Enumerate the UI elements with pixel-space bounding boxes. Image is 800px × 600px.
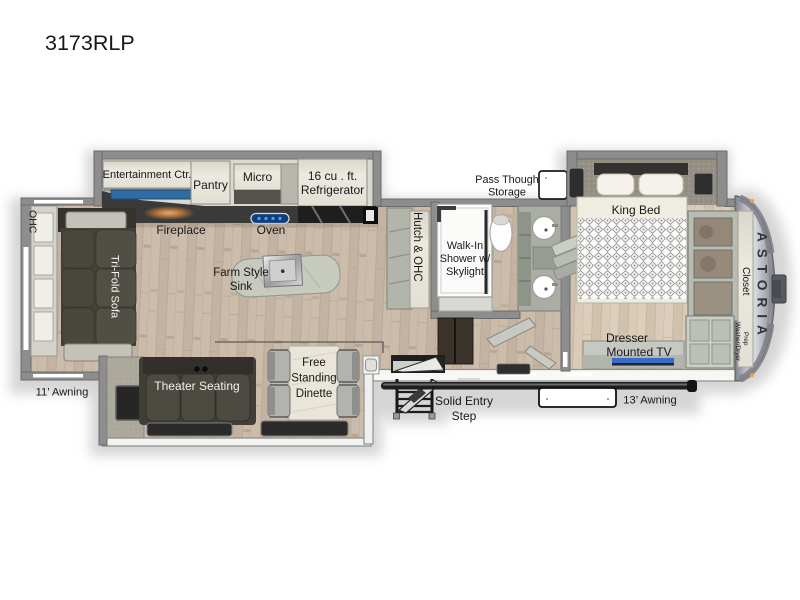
svg-text:Mounted TV: Mounted TV (606, 345, 671, 359)
svg-text:Oven: Oven (257, 223, 286, 237)
svg-text:Hutch & OHC: Hutch & OHC (411, 212, 423, 282)
svg-text:Pantry: Pantry (193, 178, 228, 192)
svg-text:Fireplace: Fireplace (156, 223, 206, 237)
svg-text:Dinette: Dinette (296, 388, 332, 400)
svg-text:Sink: Sink (230, 281, 253, 293)
svg-text:Solid Entry: Solid Entry (435, 394, 493, 408)
svg-text:Refrigerator: Refrigerator (301, 183, 364, 197)
svg-text:Micro: Micro (243, 170, 273, 184)
svg-text:11’ Awning: 11’ Awning (36, 387, 89, 399)
svg-text:Tri-Fold Sofa: Tri-Fold Sofa (109, 255, 121, 319)
svg-text:Dresser: Dresser (606, 331, 648, 345)
svg-text:16 cu . ft.: 16 cu . ft. (308, 169, 357, 183)
svg-text:Standing: Standing (291, 373, 336, 385)
svg-text:13’ Awning: 13’ Awning (623, 395, 677, 407)
svg-text:OHC: OHC (27, 210, 39, 234)
svg-text:Walk-In: Walk-In (447, 240, 483, 252)
svg-text:King Bed: King Bed (612, 203, 661, 217)
svg-text:3173RLP: 3173RLP (45, 31, 135, 55)
svg-text:Step: Step (452, 409, 477, 423)
svg-text:Theater Seating: Theater Seating (154, 379, 239, 393)
svg-text:Pass Though: Pass Though (475, 174, 538, 186)
svg-text:Shower w/: Shower w/ (440, 253, 490, 265)
svg-text:Free: Free (302, 357, 326, 369)
svg-text:Closet: Closet (740, 267, 751, 296)
svg-text:Skylight: Skylight (446, 266, 484, 278)
svg-text:Washer/Dryer: Washer/Dryer (734, 322, 741, 362)
svg-text:Farm Style: Farm Style (213, 267, 269, 279)
svg-text:Entertainment Ctr.: Entertainment Ctr. (103, 169, 192, 181)
svg-text:Storage: Storage (488, 187, 526, 199)
svg-text:Prep: Prep (742, 332, 749, 346)
